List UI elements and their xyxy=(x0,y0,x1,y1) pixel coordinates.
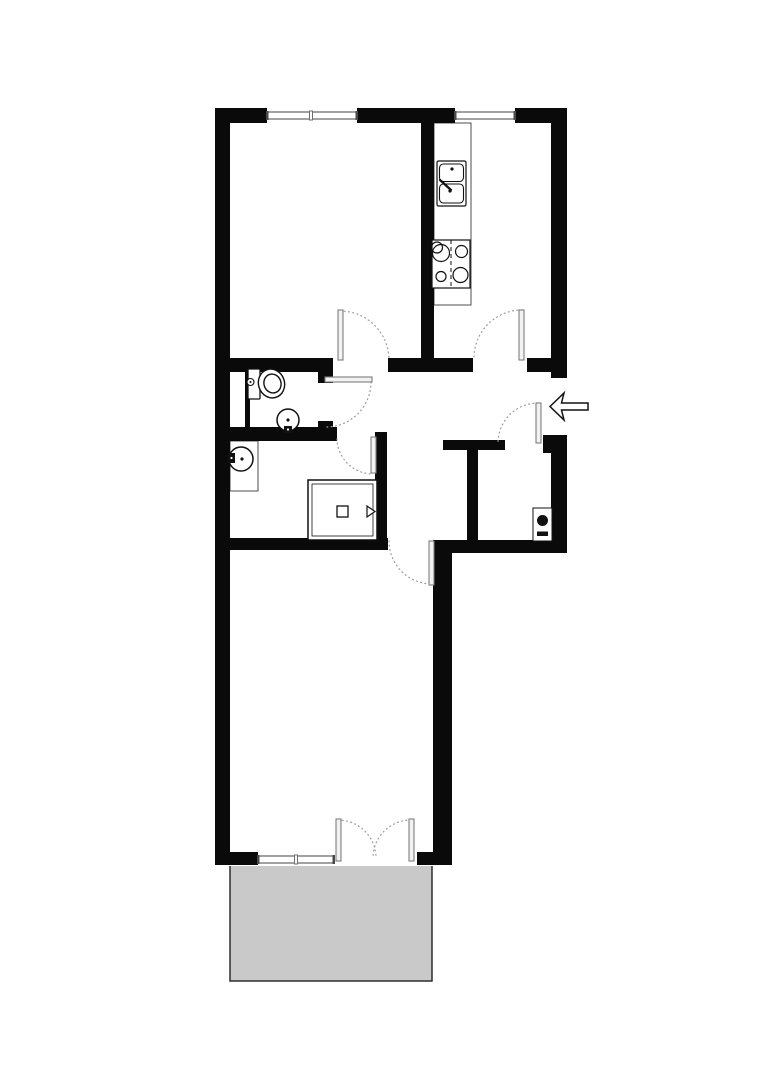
wall-mid-wall-center xyxy=(388,358,473,372)
floor-plan xyxy=(0,0,764,1080)
wall-bottom-wall-left xyxy=(215,852,258,865)
wall-closet-top-wall xyxy=(443,440,505,450)
door-entrance-swing-arc xyxy=(498,403,538,443)
boiler-bar xyxy=(537,532,548,537)
toilet-flush-dot xyxy=(250,381,252,383)
door-living-leaf xyxy=(429,541,434,585)
wall-bottom-wall-right xyxy=(417,852,452,865)
balcony-terrace xyxy=(230,866,432,981)
door-room-left xyxy=(338,310,389,360)
boiler xyxy=(533,508,552,541)
boiler-circle xyxy=(537,515,548,526)
door-kitchen-leaf xyxy=(519,310,524,360)
door-bath-swing-arc xyxy=(337,439,373,474)
window-kitchen-frame xyxy=(455,112,515,119)
washing-machine xyxy=(308,480,377,540)
door-balcony-right-leaf xyxy=(409,819,414,861)
door-balcony-left-leaf xyxy=(336,819,341,861)
bath-tap-dot xyxy=(230,457,232,459)
door-balcony-right xyxy=(373,819,414,861)
walls-group xyxy=(215,108,567,865)
stove xyxy=(432,240,471,288)
window-living-mullion xyxy=(295,855,298,864)
bath-basin-drain xyxy=(240,457,243,460)
door-bath-leaf xyxy=(371,437,376,473)
wall-living-right-wall xyxy=(433,540,452,865)
door-wc-swing-arc xyxy=(326,382,371,427)
kitchen-sink xyxy=(437,161,466,206)
wall-left-wall xyxy=(215,108,230,865)
wall-right-wall-upper xyxy=(551,108,567,378)
bathroom-washbasin xyxy=(228,447,253,471)
window-room-left-mullion xyxy=(310,111,313,120)
window-kitchen-tick-right xyxy=(514,111,517,120)
window-kitchen xyxy=(454,111,516,120)
door-entrance-leaf xyxy=(536,403,541,443)
window-living-tick-right xyxy=(333,855,336,864)
wall-closet-divider-wall xyxy=(467,450,478,540)
door-wc xyxy=(325,377,372,427)
window-room-left-tick-right xyxy=(356,111,359,120)
door-balcony-right-swing-arc xyxy=(373,820,411,858)
window-living xyxy=(257,855,335,864)
door-balcony-left-swing-arc xyxy=(338,820,376,858)
wall-top-wall-mid xyxy=(357,108,455,123)
wall-hall-bottom-wall xyxy=(452,540,567,553)
door-entrance xyxy=(498,403,541,443)
door-bath xyxy=(337,437,376,474)
wall-mid-wall-right xyxy=(527,358,551,372)
window-room-left-tick-left xyxy=(266,111,269,120)
door-living xyxy=(389,541,434,585)
door-wc-leaf xyxy=(325,377,372,382)
window-kitchen-tick-left xyxy=(454,111,457,120)
door-living-swing-arc xyxy=(389,541,432,584)
wc-basin-drain xyxy=(286,418,289,421)
sink-drain-dot xyxy=(450,167,453,170)
wall-bath-top-wall xyxy=(215,427,337,441)
entrance-arrow-icon xyxy=(550,393,588,420)
floor-plan-page xyxy=(0,0,764,1080)
window-living-tick-left xyxy=(257,855,260,864)
wall-right-wall-mid xyxy=(551,440,567,553)
door-kitchen-swing-arc xyxy=(474,310,522,358)
wc-tap-dot xyxy=(287,428,289,430)
window-room-left xyxy=(266,111,358,120)
door-balcony-left xyxy=(336,819,376,861)
door-kitchen xyxy=(474,310,524,360)
door-room-left-swing-arc xyxy=(340,311,389,360)
door-room-left-leaf xyxy=(338,310,343,360)
